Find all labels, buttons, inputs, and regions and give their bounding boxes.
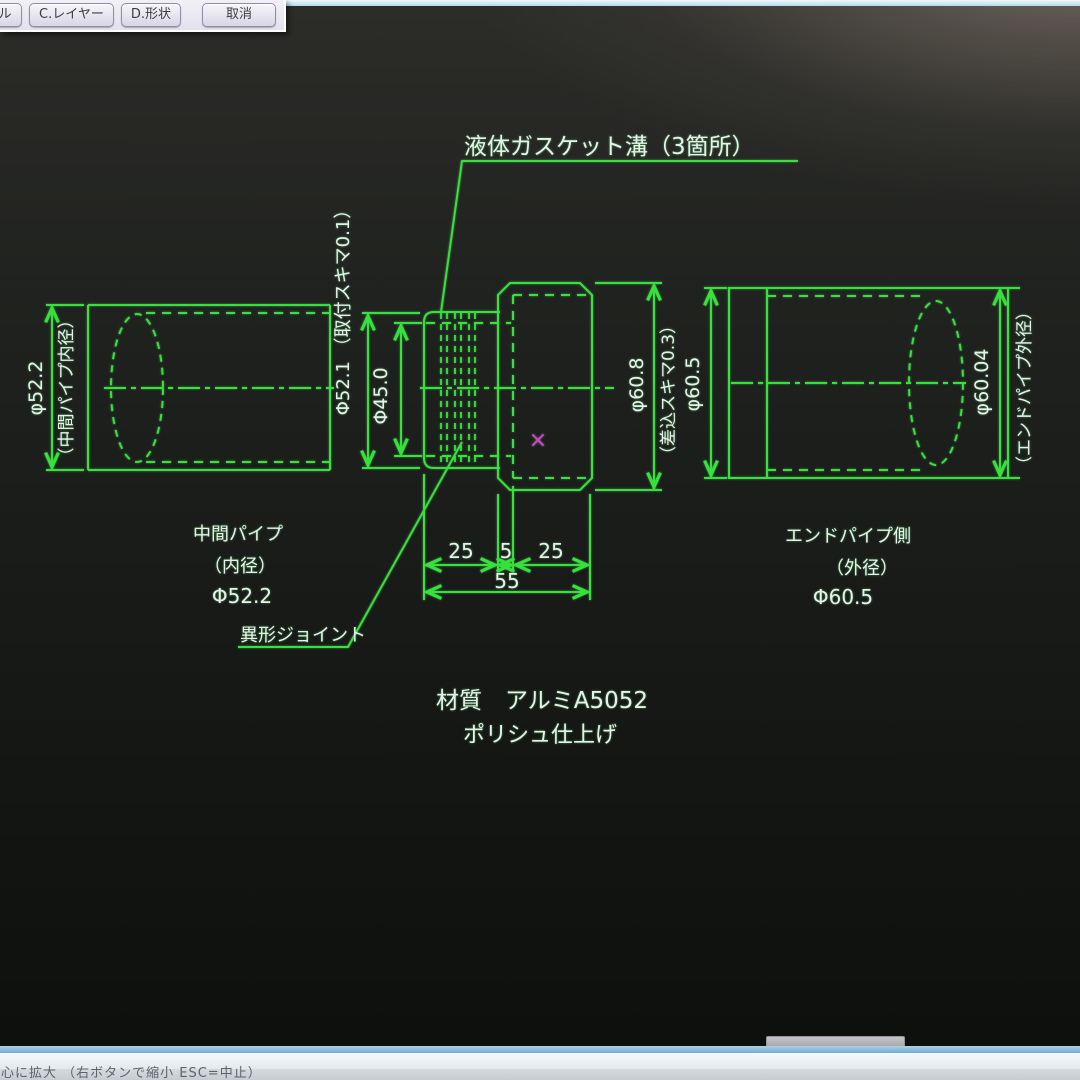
toolbar-button-layer[interactable]: C.レイヤー xyxy=(29,3,114,27)
statusbar-text: 心に拡大 （右ボタンで縮小 ESC=中止） xyxy=(1,1062,262,1080)
toolbar-button-shape[interactable]: D.形状 xyxy=(121,3,181,27)
toolbar-button-partial[interactable]: ル xyxy=(0,3,22,27)
scrollbar-track[interactable] xyxy=(0,1046,1080,1053)
cad-app-window: φ52.2 （中間パイプ内径） Φ52.1 （取付スキマ0.1） Φ45.0 φ… xyxy=(0,0,1080,1080)
toolbar: ル C.レイヤー D.形状 取消 xyxy=(0,0,286,32)
toolbar-button-cancel[interactable]: 取消 xyxy=(202,3,276,27)
drawing-canvas[interactable] xyxy=(0,5,1080,1046)
